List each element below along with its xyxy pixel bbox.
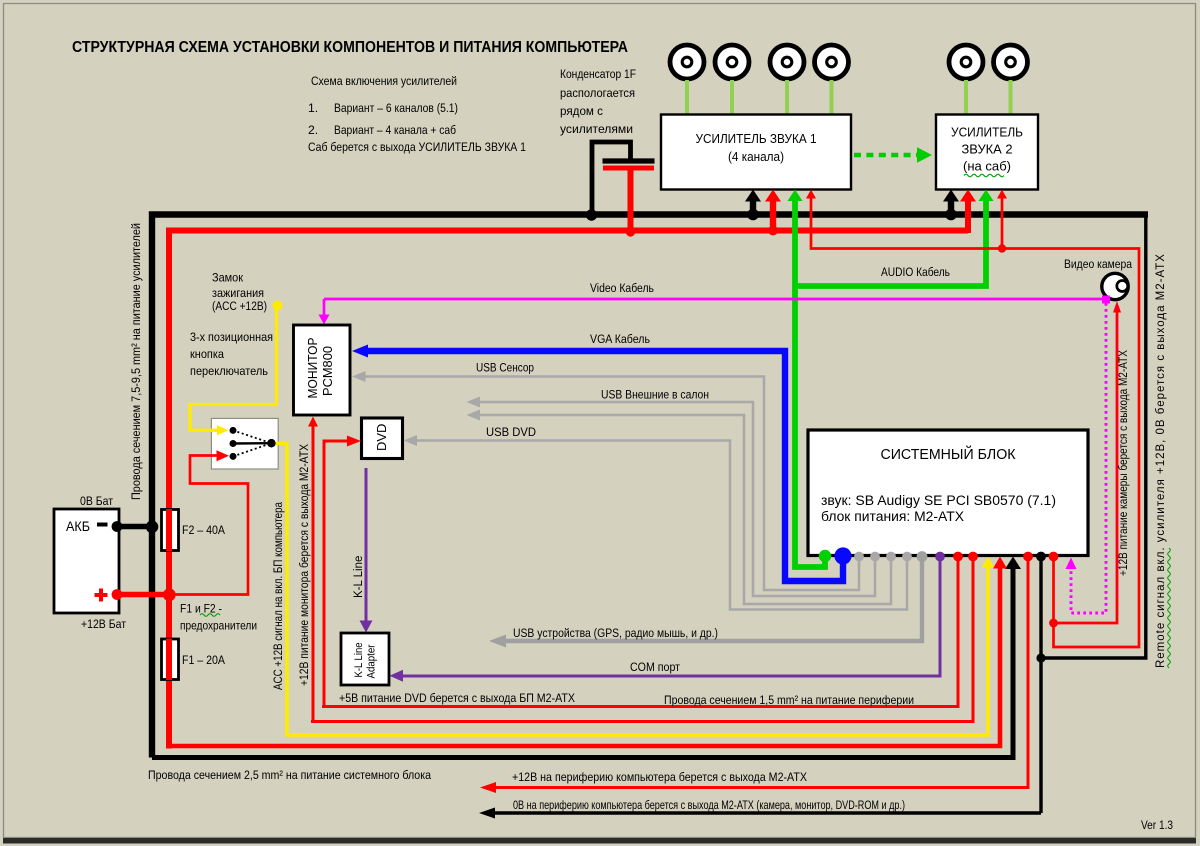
svg-text:+12В питание камеры берется с: +12В питание камеры берется с выхода M2-… <box>1118 350 1130 576</box>
svg-text:распологается: распологается <box>560 86 635 100</box>
svg-text:F2 – 40A: F2 – 40A <box>182 523 226 537</box>
svg-text:Провода сечением 7,5-9,5 mm² н: Провода сечением 7,5-9,5 mm² на питание … <box>129 223 143 500</box>
svg-text:Провода сечением 2,5 mm² на пи: Провода сечением 2,5 mm² на питание сист… <box>148 768 431 782</box>
svg-text:рядом с: рядом с <box>560 104 603 118</box>
svg-text:F1 – 20A: F1 – 20A <box>182 653 226 667</box>
svg-text:Ver 1.3: Ver 1.3 <box>1141 818 1173 832</box>
svg-text:УСИЛИТЕЛЬ: УСИЛИТЕЛЬ <box>951 125 1023 140</box>
svg-text:+12В питание монитора берется: +12В питание монитора берется с выхода M… <box>297 444 311 686</box>
svg-text:зажигания: зажигания <box>212 286 264 300</box>
svg-text:ЗВУКА 2: ЗВУКА 2 <box>962 142 1013 157</box>
svg-text:Remote сигнал вкл. усилителя +: Remote сигнал вкл. усилителя +12В, 0В бе… <box>1155 254 1167 668</box>
svg-text:УСИЛИТЕЛЬ ЗВУКА 1: УСИЛИТЕЛЬ ЗВУКА 1 <box>696 131 817 146</box>
svg-text:(4 канала): (4 канала) <box>728 149 784 164</box>
svg-text:PCM800: PCM800 <box>320 346 335 396</box>
svg-text:СТРУКТУРНАЯ СХЕМА УСТАНОВКИ КО: СТРУКТУРНАЯ СХЕМА УСТАНОВКИ КОМПОНЕНТОВ … <box>72 39 628 56</box>
svg-text:переключатель: переключатель <box>190 364 268 378</box>
svg-text:USB Сенсор: USB Сенсор <box>476 361 534 375</box>
svg-text:USB Внешние в салон: USB Внешние в салон <box>601 387 709 401</box>
svg-text:K-L Line: K-L Line <box>353 643 365 678</box>
svg-text:0В Бат: 0В Бат <box>80 494 113 508</box>
svg-text:Схема включения усилителей: Схема включения усилителей <box>311 74 457 88</box>
svg-text:блок питания: M2-ATX: блок питания: M2-ATX <box>821 509 965 525</box>
svg-text:USB DVD: USB DVD <box>486 425 536 439</box>
svg-text:0В на периферию компьютера бер: 0В на периферию компьютера берется с вых… <box>513 798 905 812</box>
svg-text:Конденсатор 1F: Конденсатор 1F <box>560 67 636 81</box>
svg-text:+12В Бат: +12В Бат <box>81 617 126 631</box>
svg-text:Замок: Замок <box>212 271 244 285</box>
svg-text:USB устройства (GPS, радио мыш: USB устройства (GPS, радио мышь, и др.) <box>513 626 718 640</box>
svg-text:МОНИТОР: МОНИТОР <box>305 338 320 399</box>
svg-text:Вариант – 4 канала + саб: Вариант – 4 канала + саб <box>334 123 456 137</box>
svg-text:AUDIO Кабель: AUDIO Кабель <box>881 265 950 279</box>
svg-text:Вариант – 6 каналов (5.1): Вариант – 6 каналов (5.1) <box>334 101 458 115</box>
svg-text:Саб берется с выхода УСИЛИТЕЛЬ: Саб берется с выхода УСИЛИТЕЛЬ ЗВУКА 1 <box>308 140 526 154</box>
svg-text:СИСТЕМНЫЙ БЛОК: СИСТЕМНЫЙ БЛОК <box>881 445 1016 463</box>
svg-text:звук: SB Audigy SE PCI SB0570: звук: SB Audigy SE PCI SB0570 (7.1) <box>821 493 1056 509</box>
svg-text:DVD: DVD <box>374 424 389 451</box>
svg-text:K-L Line: K-L Line <box>353 556 365 598</box>
svg-text:кнопка: кнопка <box>190 347 224 361</box>
svg-text:+5В питание DVD берется с выхо: +5В питание DVD берется с выхода БП M2-A… <box>339 691 575 705</box>
svg-text:ACC +12В сигнал на вкл. БП ко: ACC +12В сигнал на вкл. БП компьютера <box>271 502 285 690</box>
svg-text:3-х позиционная: 3-х позиционная <box>190 330 273 344</box>
svg-text:усилителями: усилителями <box>560 122 633 136</box>
svg-text:АКБ: АКБ <box>66 519 90 534</box>
svg-text:1.: 1. <box>308 101 318 115</box>
svg-text:VGA Кабель: VGA Кабель <box>590 332 650 346</box>
svg-text:предохранители: предохранители <box>180 619 257 633</box>
svg-text:Video Кабель: Video Кабель <box>590 281 654 295</box>
svg-text:Провода сечением 1,5 mm² на пи: Провода сечением 1,5 mm² на питание пери… <box>664 693 914 707</box>
svg-text:(на саб): (на саб) <box>963 159 1011 174</box>
svg-text:(ACC +12В): (ACC +12В) <box>212 299 267 313</box>
svg-text:Adapter: Adapter <box>366 644 378 678</box>
svg-text:COM порт: COM порт <box>630 660 680 674</box>
svg-text:Видео камера: Видео камера <box>1064 257 1132 271</box>
svg-text:2.: 2. <box>308 123 318 137</box>
svg-text:+12В на периферию компьютера б: +12В на периферию компьютера берется с в… <box>512 770 807 784</box>
